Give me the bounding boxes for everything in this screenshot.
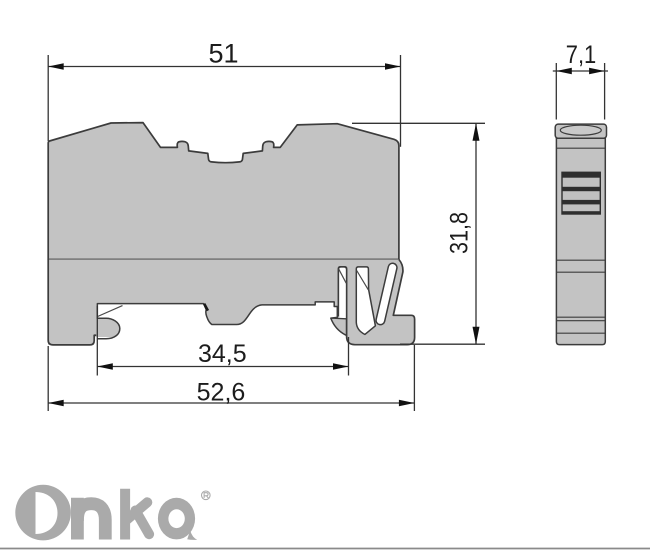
svg-text:31,8: 31,8	[446, 212, 474, 254]
svg-text:52,6: 52,6	[197, 379, 246, 407]
svg-text:7,1: 7,1	[566, 41, 597, 69]
svg-text:51: 51	[208, 39, 238, 69]
svg-text:34,5: 34,5	[198, 340, 247, 368]
